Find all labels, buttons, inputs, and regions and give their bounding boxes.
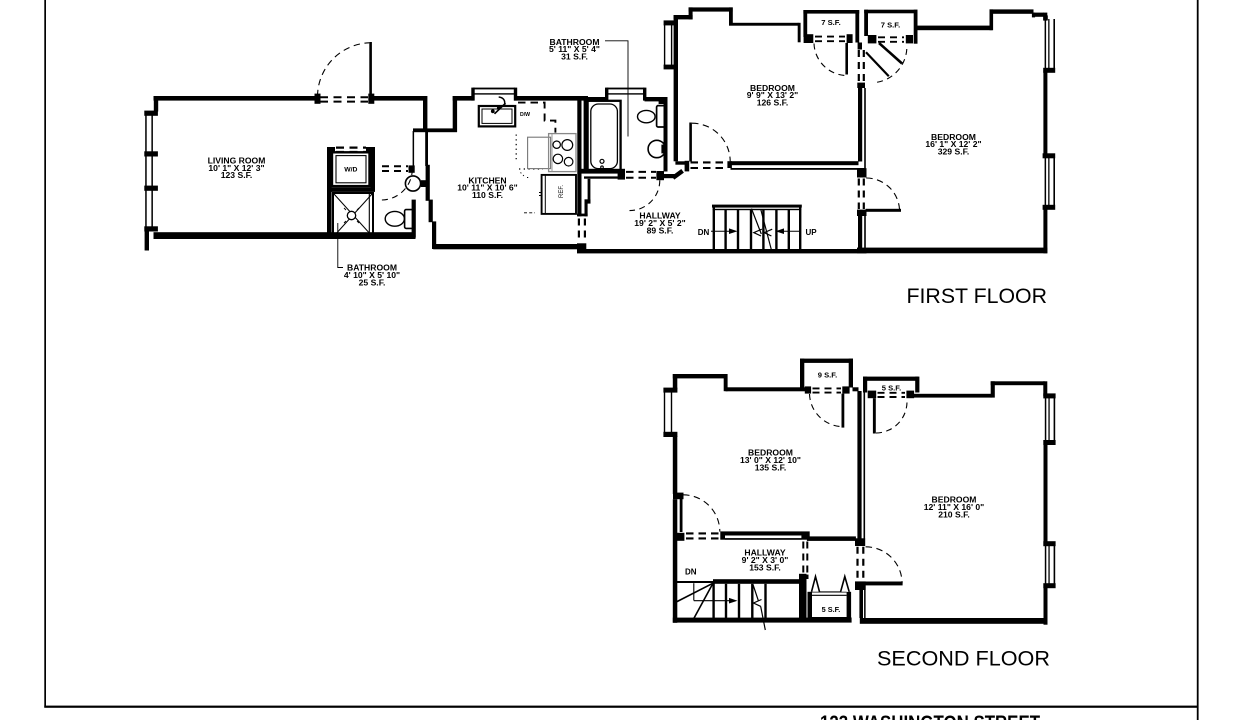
svg-text:110 S.F.: 110 S.F.	[472, 190, 503, 200]
svg-text:89 S.F.: 89 S.F.	[647, 225, 674, 235]
svg-text:210 S.F.: 210 S.F.	[938, 509, 970, 519]
svg-text:7 S.F.: 7 S.F.	[821, 18, 840, 27]
svg-text:123 S.F.: 123 S.F.	[221, 170, 253, 180]
svg-text:SECOND FLOOR: SECOND FLOOR	[877, 646, 1050, 670]
svg-text:153 S.F.: 153 S.F.	[749, 562, 781, 572]
svg-text:D/W: D/W	[520, 112, 530, 118]
svg-text:DN: DN	[685, 567, 697, 576]
svg-text:FIRST FLOOR: FIRST FLOOR	[907, 284, 1048, 308]
svg-text:5 S.F.: 5 S.F.	[882, 383, 901, 392]
svg-text:DN: DN	[698, 228, 710, 237]
svg-text:7 S.F.: 7 S.F.	[881, 20, 900, 29]
svg-text:5 S.F.: 5 S.F.	[822, 605, 841, 614]
svg-text:25 S.F.: 25 S.F.	[359, 277, 386, 287]
svg-text:329 S.F.: 329 S.F.	[938, 147, 970, 157]
svg-text:126 S.F.: 126 S.F.	[757, 98, 789, 108]
svg-text:135 S.F.: 135 S.F.	[755, 462, 787, 472]
svg-text:W/D: W/D	[344, 167, 357, 174]
svg-text:31 S.F.: 31 S.F.	[561, 52, 588, 62]
svg-text:REF.: REF.	[559, 185, 565, 198]
svg-text:123 WASHINGTON STREET: 123 WASHINGTON STREET	[820, 711, 1040, 720]
svg-text:UP: UP	[805, 228, 817, 237]
svg-text:9 S.F.: 9 S.F.	[818, 371, 837, 380]
